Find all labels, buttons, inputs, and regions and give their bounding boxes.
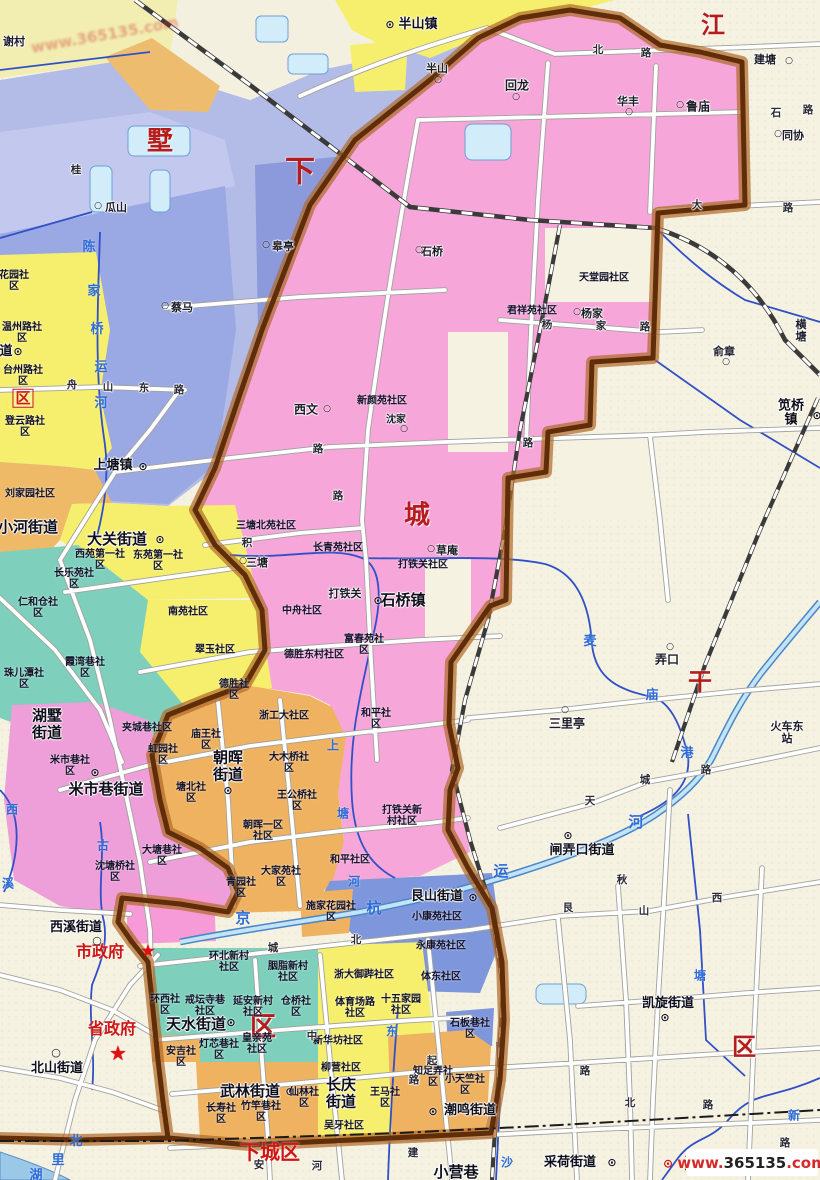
map-labels-layer: 墅下城区江干区区下城区江干区⊙市政府★省政府★半山镇⊙上塘镇⊙大关街道⊙湖墅街道… — [0, 0, 820, 1180]
map-label-sym: ⊙ — [385, 19, 394, 31]
map-label-water: 溪 — [2, 877, 14, 890]
province-government-star: ★ — [109, 1042, 127, 1064]
map-label-road: 起 — [427, 1056, 438, 1068]
street-chaoming: 潮鸣街道 — [444, 1104, 496, 1118]
map-label-sym: ○ — [427, 545, 435, 555]
map-label-com: 东苑第一社区 — [130, 550, 186, 572]
map-label-road: 北 — [625, 1098, 636, 1110]
map-label-com: 虹园社区 — [147, 744, 179, 766]
map-label-com: 戒坛寺巷社区 — [183, 995, 227, 1017]
map-label-sym: ○ — [415, 246, 423, 256]
map-label-road: 路 — [409, 1075, 420, 1087]
map-label-sym: ⊙ — [90, 767, 99, 779]
map-label-vil: 横塘 — [792, 319, 811, 343]
street-tianshui: 天水街道 — [166, 1016, 226, 1033]
map-canvas: 墅下城区江干区区下城区江干区⊙市政府★省政府★半山镇⊙上塘镇⊙大关街道⊙湖墅街道… — [0, 0, 820, 1180]
map-label-water: 古 — [97, 839, 109, 852]
map-label-com: 长乐苑社区 — [52, 568, 96, 590]
map-label-com: 珠儿潭社区 — [2, 668, 46, 690]
map-label-com: 三塘北苑社区 — [224, 521, 308, 532]
map-label-vil: 蔡马 — [171, 302, 193, 314]
map-label-water: 湖 — [29, 1169, 42, 1180]
map-label-com: 王马社区 — [369, 1087, 401, 1109]
map-label-com: 天堂园社区 — [567, 273, 641, 284]
map-label-water: 新 — [788, 1109, 800, 1122]
map-label-water: 桥 — [90, 323, 103, 337]
map-label-com: 石板巷社区 — [448, 1018, 492, 1040]
map-label-sym: ⊙ — [373, 595, 382, 607]
map-label-com: 庙王社区 — [190, 729, 222, 751]
map-label-water: 北 — [69, 1135, 82, 1149]
map-label-road: 路 — [640, 322, 651, 334]
map-label-water: 沙 — [501, 1156, 513, 1169]
map-label-com: 胭脂新村社区 — [266, 961, 310, 983]
map-label-road: 东 — [139, 383, 150, 395]
map-label-vil: 同协 — [782, 130, 804, 142]
map-label-road: 建 — [408, 1148, 419, 1160]
map-label-vil: 草庵 — [436, 545, 458, 557]
map-label-sym: ○ — [161, 302, 169, 312]
map-label-road: 积 — [242, 538, 253, 550]
map-label-road: 路 — [783, 203, 794, 215]
map-label-road: 山 — [103, 382, 114, 394]
map-label-com: 西苑第一社区 — [72, 549, 128, 571]
map-label-com: 柳营社区 — [309, 1063, 373, 1074]
map-label-sym: ⊙ — [13, 346, 22, 358]
street-zhanongkou: 闸弄口街道 — [549, 844, 614, 858]
map-label-road: 天 — [585, 796, 596, 808]
map-label-road: 山 — [639, 906, 650, 918]
map-label-sym: ○ — [561, 706, 569, 716]
map-label-com: 米市巷社区 — [48, 755, 92, 777]
map-label-com: 打铁关社区 — [386, 560, 460, 571]
map-label-sym: ○ — [676, 101, 684, 111]
map-label-com: 大家苑社区 — [259, 866, 303, 888]
map-label-sym: ⊙ — [660, 1012, 669, 1024]
street-changqing: 长庆街道 — [324, 1077, 358, 1110]
map-label-com: 朝晖一区社区 — [241, 820, 285, 842]
map-label-com: 翠玉社区 — [183, 645, 247, 656]
map-label-water: 东 — [386, 1025, 398, 1038]
map-label-vil: 沈家 — [386, 415, 406, 426]
street-genshan: 艮山街道 — [411, 890, 463, 904]
map-label-road: 大 — [692, 200, 703, 212]
map-label-sym: ○ — [94, 202, 102, 212]
city-government-star: ★ — [140, 943, 155, 962]
map-label-vil: 石桥 — [421, 246, 443, 258]
map-label-water: 上 — [327, 739, 339, 752]
map-label-com: 延安新村社区 — [231, 996, 275, 1018]
street-xiaohe: 小河街道 — [0, 519, 58, 536]
map-label-sym: ⊙ — [223, 785, 232, 797]
map-label-road: 舟 — [67, 380, 78, 392]
street-daguan: 大关街道 — [87, 531, 147, 548]
map-label-road: 北 — [593, 45, 604, 57]
map-label-com: 刘家园社区 — [0, 489, 70, 500]
district-name-xiacheng: 下城区 — [240, 1141, 300, 1163]
map-label-com: 王公桥社区 — [275, 790, 319, 812]
map-label-road: 安 — [254, 1160, 265, 1172]
map-label-water: 杭 — [366, 900, 381, 917]
map-label-sym: ⊙ — [285, 1086, 294, 1098]
map-label-com: 和平社区 — [360, 708, 392, 730]
map-label-com: 知足弄社区 — [411, 1066, 455, 1088]
map-label-sym: ○ — [774, 130, 782, 140]
map-label-vil: 打铁关 — [329, 588, 362, 600]
map-label-sym: ○ — [262, 241, 270, 251]
street-wulin: 武林街道 — [220, 1083, 280, 1100]
map-label-road: 城 — [640, 775, 651, 787]
watermark-number: 365135 — [724, 1154, 787, 1172]
map-label-vil: 华丰 — [617, 96, 639, 108]
map-label-road: 路 — [580, 1066, 591, 1078]
map-label-sym: ○ — [785, 57, 793, 67]
district-char-gan: 干 — [688, 669, 712, 695]
map-label-sym: ⊙ — [812, 410, 820, 422]
map-label-sym: ⊙ — [607, 1157, 616, 1169]
map-label-vil: 弄口 — [655, 653, 679, 666]
map-label-water: 京 — [235, 910, 250, 927]
map-label-com: 环西社区 — [149, 994, 181, 1016]
map-label-road: 城 — [268, 943, 279, 955]
map-label-com: 浙大御跸社区 — [320, 970, 408, 981]
map-label-sym: ⊙ — [155, 534, 164, 546]
map-label-com: 和平社区 — [318, 855, 382, 866]
map-label-com: 永康苑社区 — [404, 941, 478, 952]
map-label-com: 新颜苑社区 — [345, 396, 419, 407]
map-label-com: 体东社区 — [409, 972, 473, 983]
map-label-com: 安吉社区 — [165, 1046, 197, 1068]
map-label-vil: 建塘 — [754, 54, 776, 66]
map-label-com: 体育场路社区 — [333, 997, 377, 1019]
map-label-road: 杨 — [542, 320, 553, 332]
map-label-sym: ○ — [722, 358, 730, 368]
map-label-com: 德胜社区 — [218, 679, 250, 701]
map-label-com: 沈塘桥社区 — [93, 861, 137, 883]
map-label-com: 十五家园社区 — [379, 994, 423, 1016]
map-label-sym: ○ — [512, 93, 520, 103]
street-caihe: 采荷街道 — [544, 1156, 596, 1170]
map-label-com: 青园社区 — [225, 877, 257, 899]
map-label-road: 石 — [771, 108, 782, 120]
district-char-qu3: 区 — [12, 389, 33, 408]
map-label-vil: 半山 — [426, 63, 448, 75]
watermark: www.365135.com — [686, 1149, 818, 1176]
map-label-sym: ○ — [400, 425, 408, 435]
map-label-road: 路 — [313, 444, 324, 456]
map-label-vil: 谢村 — [3, 36, 25, 48]
street-partial: 道 — [0, 345, 13, 359]
map-label-sym: ⊙ — [428, 1106, 437, 1118]
map-label-road: 路 — [703, 1100, 714, 1112]
street-beishan: 北山街道 — [31, 1062, 83, 1076]
map-label-vil: 西文 — [294, 403, 318, 416]
district-char-xia: 下 — [285, 156, 315, 189]
map-label-com: 仓桥社区 — [280, 996, 312, 1018]
map-label-road: 秋 — [617, 875, 628, 887]
map-label-sym: ○ — [239, 557, 247, 567]
map-label-road: 路 — [523, 438, 534, 450]
map-label-com: 大塘巷社区 — [140, 845, 184, 867]
map-label-water: 运 — [493, 863, 508, 880]
map-label-road: 路 — [641, 48, 652, 60]
map-label-com: 皇亲苑社区 — [241, 1033, 273, 1055]
map-label-road: 北 — [351, 935, 362, 947]
map-label-vil: 鲁庙 — [686, 100, 710, 113]
map-label-com: 长青苑社区 — [301, 543, 375, 554]
district-char-shu: 墅 — [147, 128, 173, 157]
map-label-com: 大木桥社区 — [267, 752, 311, 774]
map-label-com: 小康苑社区 — [400, 912, 474, 923]
map-label-com: 仙林社区 — [288, 1087, 320, 1109]
city-government-label: 市政府 — [76, 943, 124, 961]
map-label-sym: ○ — [625, 108, 633, 118]
district-char-cheng: 城 — [404, 502, 430, 531]
map-label-com: 新华坊社区 — [301, 1036, 375, 1047]
map-label-com: 灯芯巷社区 — [197, 1039, 241, 1061]
map-label-water: 河 — [628, 814, 643, 831]
map-label-sym: ○ — [573, 308, 581, 318]
map-label-com: 长寿社区 — [205, 1103, 237, 1125]
map-label-com: 打铁关新村社区 — [378, 805, 426, 827]
map-label-road: 西 — [712, 893, 723, 905]
map-label-water: 河 — [94, 397, 107, 411]
map-label-vil: 瓜山 — [105, 202, 127, 214]
map-label-road: 桂 — [71, 165, 82, 177]
map-label-water: 家 — [87, 285, 100, 299]
watermark-prefix: www. — [677, 1154, 723, 1172]
map-label-water: 运 — [94, 361, 107, 375]
map-label-com: 君祥苑社区 — [495, 306, 569, 317]
map-label-sym: ○ — [666, 643, 674, 653]
map-label-water: 西 — [6, 803, 18, 816]
watermark-suffix: .com — [786, 1154, 820, 1172]
town-banshan: 半山镇 — [398, 18, 437, 32]
jianggan-marker: ⊙ — [663, 1157, 673, 1170]
map-label-water: 麦 — [583, 635, 596, 649]
map-label-vil: 皋亭 — [272, 241, 294, 253]
map-label-vil: 回龙 — [505, 79, 529, 92]
town-jianqiao: 笕桥镇 — [777, 400, 806, 429]
map-label-com: 仁和仓社区 — [16, 597, 60, 619]
map-label-com: 小天竺社区 — [443, 1074, 487, 1096]
map-label-com: 竹竿巷社区 — [239, 1101, 283, 1123]
map-label-com: 富春苑社区 — [342, 634, 386, 656]
map-label-com: 施家花园社区 — [303, 901, 359, 923]
map-label-com: 浙工大社区 — [247, 711, 321, 722]
map-label-sym: ○ — [323, 405, 331, 415]
map-label-vil: 三塘 — [246, 557, 268, 569]
map-label-sym: ⊙ — [138, 461, 147, 473]
map-label-water: 河 — [348, 875, 360, 888]
map-label-road: 路 — [174, 385, 185, 397]
town-shiqiao: 石桥镇 — [380, 592, 425, 609]
map-label-com: 吴牙社区 — [312, 1121, 376, 1132]
province-government-label: 省政府 — [88, 1020, 136, 1038]
district-char-jiang: 江 — [701, 12, 725, 38]
map-label-com: 夹城巷社区 — [107, 723, 187, 734]
street-hushu: 湖墅街道 — [30, 708, 64, 741]
map-label-sym: ⊙ — [468, 892, 477, 904]
map-label-road: 路 — [701, 765, 712, 777]
map-label-road: 艮 — [563, 903, 574, 915]
map-label-vil: 俞章 — [713, 346, 735, 358]
map-label-com: 中舟社区 — [270, 606, 334, 617]
map-label-com: 花园社区 — [0, 270, 29, 292]
map-label-sym: ⊙ — [563, 830, 572, 842]
map-label-road: 河 — [312, 1161, 323, 1173]
map-label-road: 中 — [307, 1031, 318, 1043]
district-char-qu2: 区 — [732, 1034, 756, 1060]
map-label-sym: ○ — [51, 1047, 61, 1059]
map-label-com: 南苑社区 — [156, 607, 220, 618]
map-label-sym: ○ — [92, 935, 102, 947]
map-label-com: 登云路社区 — [3, 416, 47, 438]
map-label-com: 台州路社区 — [1, 365, 45, 387]
poi-xiaoyingxiang: 小营巷 — [433, 1164, 478, 1180]
street-zhaohui: 朝晖街道 — [211, 750, 245, 783]
map-label-com: 温州路社区 — [0, 322, 44, 344]
map-label-sym: ○ — [434, 76, 442, 86]
map-label-com: 德胜东村社区 — [272, 650, 356, 661]
street-kaixuan: 凯旋街道 — [642, 997, 694, 1011]
map-label-com: 霞湾巷社区 — [63, 657, 107, 679]
map-label-road: 路 — [333, 491, 344, 503]
map-label-vil: 杨家 — [581, 308, 603, 320]
map-label-com: 塘北社区 — [175, 782, 207, 804]
map-label-road: 路 — [803, 105, 814, 117]
map-label-road: 家 — [596, 321, 607, 333]
district-char-qu: 区 — [250, 1014, 276, 1043]
street-xixi: 西溪街道 — [50, 921, 102, 935]
map-label-water: 里 — [51, 1154, 64, 1168]
map-label-water: 塘 — [694, 969, 706, 982]
map-label-water: 塘 — [337, 807, 349, 820]
map-label-water: 庙 — [645, 689, 658, 703]
map-label-water: 港 — [680, 747, 693, 761]
map-label-vil: 火车东站 — [771, 721, 804, 745]
street-mishixiang: 米市巷街道 — [68, 781, 143, 798]
map-label-com: 环北新村社区 — [207, 951, 251, 973]
town-shangtang: 上塘镇 — [93, 459, 132, 473]
map-label-vil: 三里亭 — [549, 717, 585, 730]
map-label-water: 陈 — [82, 241, 95, 255]
map-label-sym: ⊙ — [226, 1017, 235, 1029]
